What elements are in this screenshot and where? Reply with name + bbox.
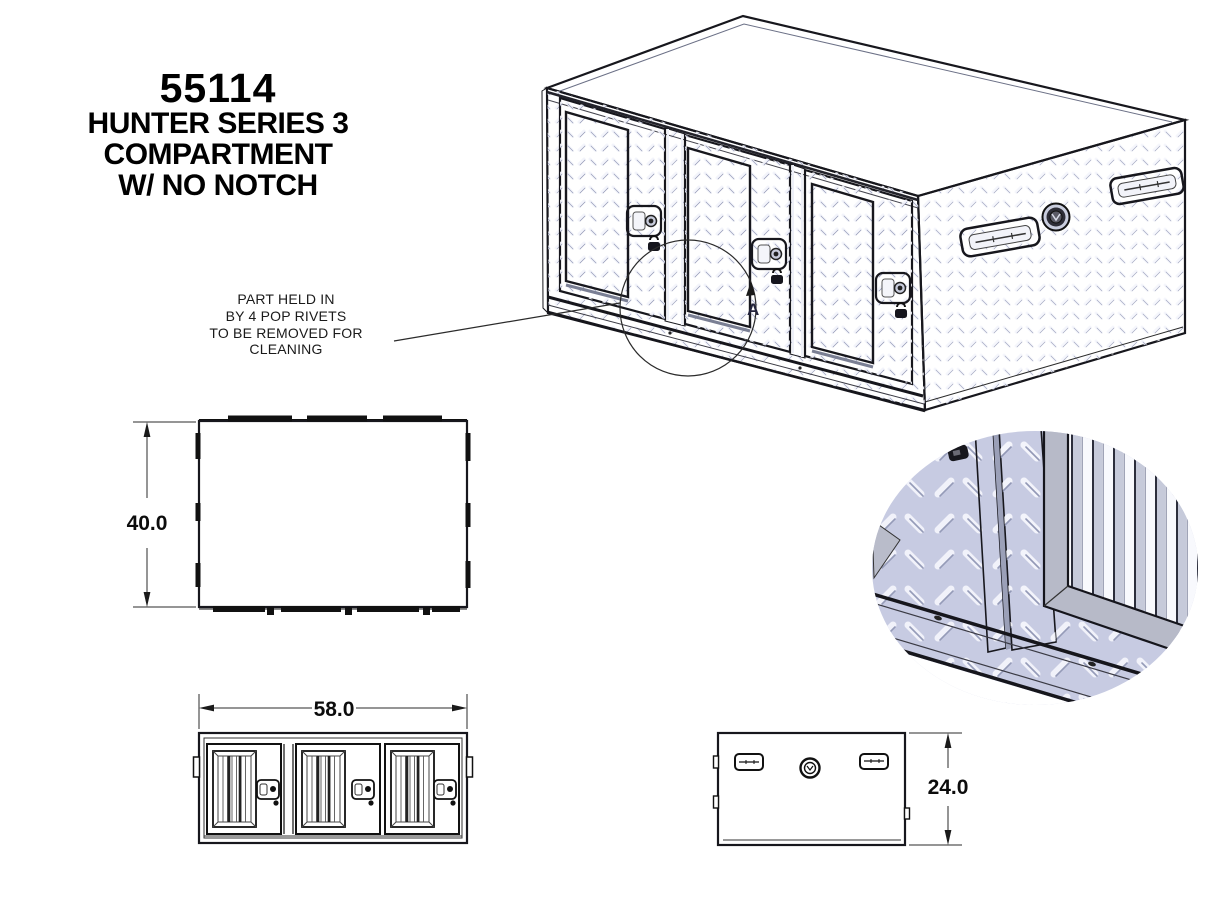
drawing-sheet: 55114 HUNTER SERIES 3 COMPARTMENT W/ NO … [0, 0, 1214, 922]
front-view-doors [0, 0, 1214, 922]
front-door-1 [207, 744, 281, 834]
front-door-2 [296, 744, 380, 834]
front-door-3 [385, 744, 459, 834]
